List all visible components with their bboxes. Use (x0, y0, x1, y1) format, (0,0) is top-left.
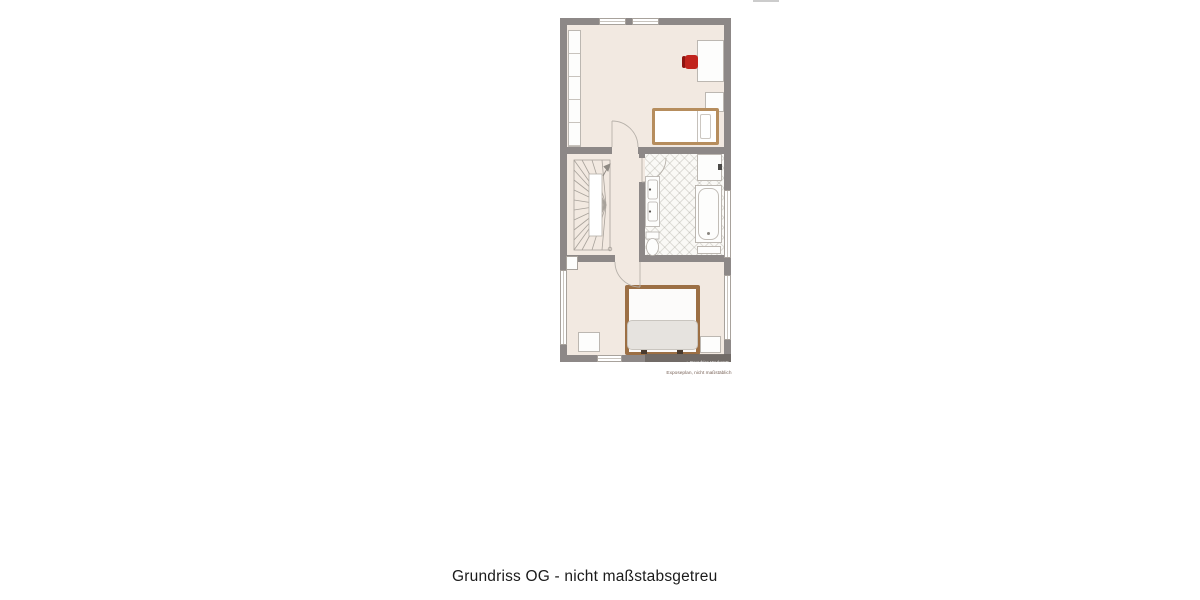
top-edge-artifact (753, 0, 779, 2)
window-left-bedroom (560, 270, 567, 345)
double-bed-duvet (627, 320, 698, 350)
plan-disclaimer-text: Exposeplan, nicht maßstäblich (666, 370, 731, 375)
wall-mid-upper-right (638, 147, 731, 154)
window-right-bath (724, 190, 731, 258)
plan-disclaimer: Exposeplan, nicht maßstäblich (560, 364, 731, 382)
window-top-1 (599, 18, 626, 25)
wall-mid-lower-right (640, 255, 731, 262)
wall-mid-upper-left (560, 147, 612, 154)
bathtub-drain (707, 232, 710, 235)
floorplan: ⌂ Grundriss Werkstatt (560, 18, 731, 362)
window-bottom (597, 355, 622, 362)
watermark-text: ⌂ Grundriss Werkstatt (686, 360, 729, 362)
window-right-bedroom (724, 275, 731, 340)
plan-caption: Grundriss OG - nicht maßstabsgetreu (452, 568, 717, 586)
radiator-left (578, 332, 600, 352)
page: ⌂ Grundriss Werkstatt Exposeplan, nicht … (0, 0, 1200, 600)
shower-fixture-icon (718, 164, 722, 170)
desk (697, 40, 724, 82)
shaft (566, 256, 578, 270)
single-bed-pillow (700, 114, 711, 139)
chair-seat (685, 55, 698, 69)
wall-bath-left (639, 182, 645, 262)
watermark: ⌂ Grundriss Werkstatt (645, 354, 731, 362)
wardrobe (568, 30, 581, 147)
single-bed-divider (697, 111, 698, 142)
wall-bath-left-stub (639, 154, 645, 158)
double-bed (625, 285, 700, 355)
single-bed (652, 108, 719, 145)
radiator-right (700, 336, 721, 353)
window-top-2 (632, 18, 659, 25)
chair-red (682, 54, 698, 70)
bath-shelf (697, 246, 721, 254)
